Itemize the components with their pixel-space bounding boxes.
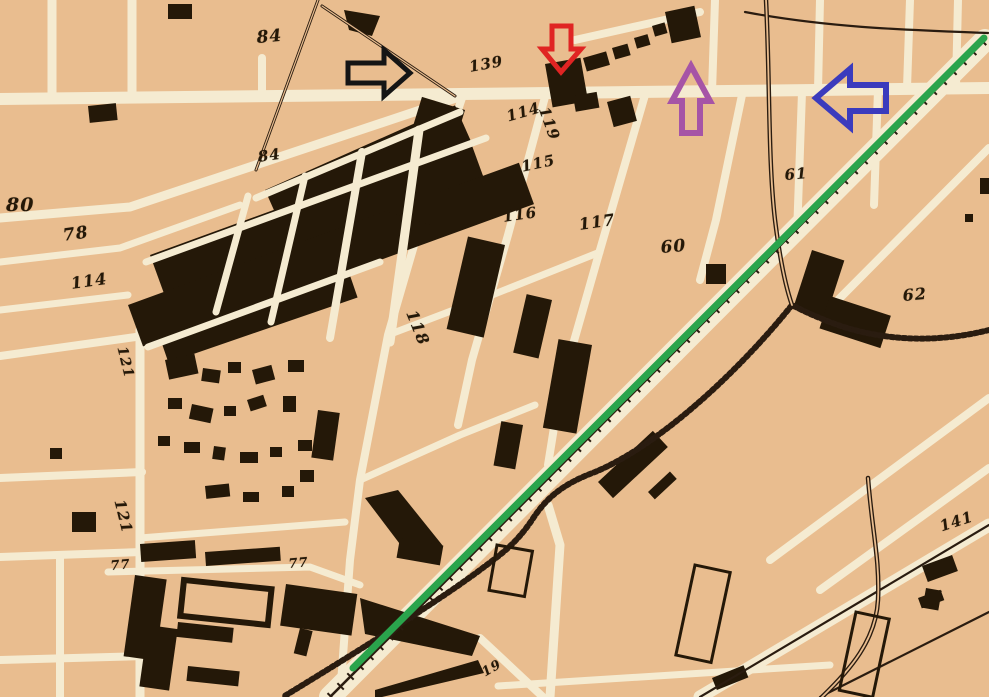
map-label-84: 84 (256, 28, 283, 47)
map-label-78: 78 (62, 224, 90, 244)
map-label-84: 84 (257, 147, 282, 165)
map-canvas[interactable]: 8484139807811411411911511611711860616212… (0, 0, 989, 697)
map-label-77: 77 (110, 558, 131, 573)
map-label-62: 62 (902, 286, 928, 304)
map-label-60: 60 (660, 238, 687, 257)
map-label-77: 77 (288, 556, 309, 571)
map-label-61: 61 (784, 166, 808, 183)
map-label-80: 80 (6, 196, 34, 215)
map-image (0, 0, 989, 697)
